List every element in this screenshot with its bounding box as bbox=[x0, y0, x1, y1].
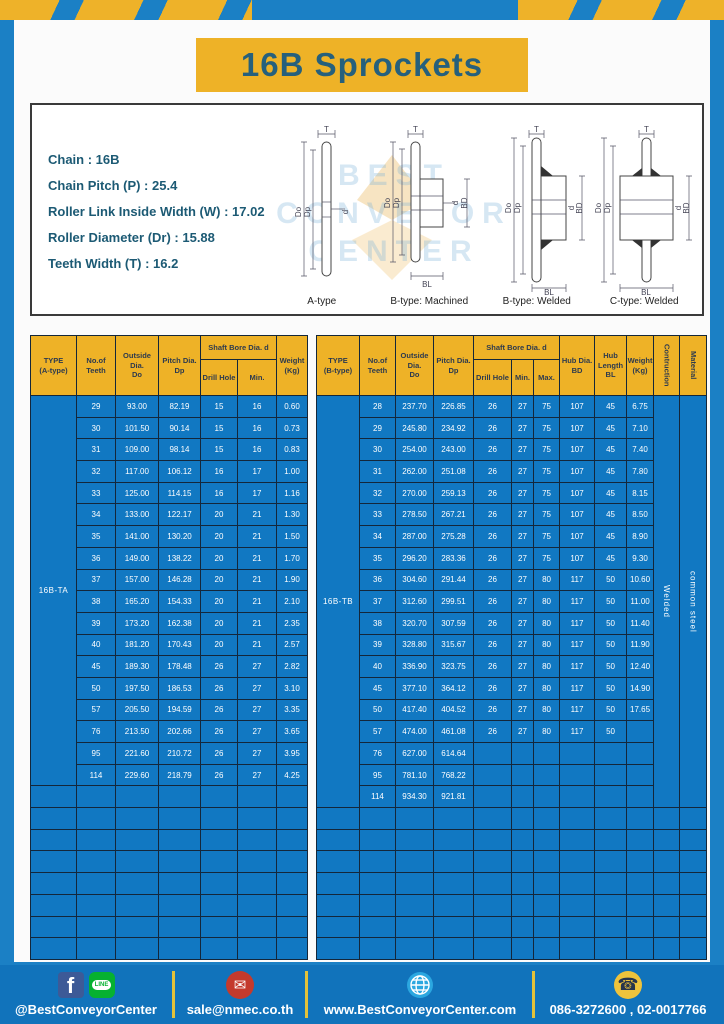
footer-email: ✉ sale@nmec.co.th bbox=[175, 965, 305, 1024]
cell: 90.14 bbox=[159, 417, 201, 439]
cell: 27 bbox=[512, 461, 534, 483]
empty-row bbox=[317, 829, 707, 851]
cell bbox=[654, 938, 680, 960]
cell: 36 bbox=[360, 569, 396, 591]
svg-text:T: T bbox=[534, 125, 539, 134]
cell bbox=[595, 851, 627, 873]
footer-contact-bar: f LINE @BestConveyorCenter ✉ sale@nmec.c… bbox=[0, 965, 724, 1024]
cell bbox=[317, 894, 360, 916]
svg-text:T: T bbox=[413, 125, 418, 134]
sprocket-section-icon: T Do Dp d bbox=[274, 124, 370, 296]
cell bbox=[474, 764, 512, 786]
empty-row bbox=[317, 808, 707, 830]
cell bbox=[680, 808, 707, 830]
svg-text:Dp: Dp bbox=[392, 197, 401, 208]
cell: 93.00 bbox=[116, 396, 159, 418]
cell: 1.90 bbox=[277, 569, 308, 591]
cell: 768.22 bbox=[434, 764, 474, 786]
table-row: 36304.60291.442627801175010.60 bbox=[317, 569, 707, 591]
type-label: 16B-TA bbox=[31, 396, 77, 786]
cell bbox=[560, 873, 595, 895]
svg-text:Do: Do bbox=[294, 206, 303, 217]
cell: 107 bbox=[560, 482, 595, 504]
cell bbox=[317, 808, 360, 830]
cell: 8.15 bbox=[627, 482, 654, 504]
cell bbox=[31, 916, 77, 938]
cell: 307.59 bbox=[434, 612, 474, 634]
cell bbox=[534, 743, 560, 765]
cell bbox=[201, 873, 238, 895]
cell: 259.13 bbox=[434, 482, 474, 504]
table-row: 33278.50267.21262775107458.50 bbox=[317, 504, 707, 526]
cell bbox=[238, 829, 277, 851]
drawing-caption: B-type: Welded bbox=[503, 296, 571, 307]
cell bbox=[560, 786, 595, 808]
cell: 234.92 bbox=[434, 417, 474, 439]
cell: 80 bbox=[534, 699, 560, 721]
drawing-caption: A-type bbox=[307, 296, 336, 307]
cell bbox=[159, 786, 201, 808]
cell: 21 bbox=[238, 526, 277, 548]
cell: 218.79 bbox=[159, 764, 201, 786]
cell bbox=[116, 851, 159, 873]
cell bbox=[277, 938, 308, 960]
cell: 26 bbox=[201, 656, 238, 678]
cell: 30 bbox=[77, 417, 116, 439]
cell: 154.33 bbox=[159, 591, 201, 613]
cell: 287.00 bbox=[396, 526, 434, 548]
svg-text:Do: Do bbox=[504, 202, 513, 213]
cell: 75 bbox=[534, 439, 560, 461]
email-address: sale@nmec.co.th bbox=[187, 1002, 294, 1017]
cell: 146.28 bbox=[159, 569, 201, 591]
empty-row bbox=[31, 851, 308, 873]
cell: 312.60 bbox=[396, 591, 434, 613]
cell bbox=[560, 851, 595, 873]
cell bbox=[116, 873, 159, 895]
cell bbox=[116, 894, 159, 916]
cell: 50 bbox=[595, 677, 627, 699]
cell: 107 bbox=[560, 439, 595, 461]
cell: 27 bbox=[238, 764, 277, 786]
svg-text:BD: BD bbox=[682, 202, 691, 213]
cell: 80 bbox=[534, 569, 560, 591]
cell bbox=[512, 873, 534, 895]
cell bbox=[534, 786, 560, 808]
cell: 26 bbox=[201, 764, 238, 786]
cell: 45 bbox=[595, 526, 627, 548]
cell bbox=[627, 916, 654, 938]
cell: 202.66 bbox=[159, 721, 201, 743]
cell bbox=[434, 873, 474, 895]
cell: 15 bbox=[201, 439, 238, 461]
cell bbox=[201, 808, 238, 830]
table-row: 16B-TB28237.70226.85262775107456.75Welde… bbox=[317, 396, 707, 418]
col-header-outside-dia: Outside Dia. Do bbox=[396, 336, 434, 396]
footer-social: f LINE @BestConveyorCenter bbox=[0, 965, 172, 1024]
cell: 614.64 bbox=[434, 743, 474, 765]
cell: 37 bbox=[77, 569, 116, 591]
cell: 1.30 bbox=[277, 504, 308, 526]
cell bbox=[560, 938, 595, 960]
cell: 27 bbox=[238, 721, 277, 743]
facebook-icon: f bbox=[58, 972, 84, 998]
cell: 404.52 bbox=[434, 699, 474, 721]
cell: 213.50 bbox=[116, 721, 159, 743]
cell: 33 bbox=[77, 482, 116, 504]
svg-text:T: T bbox=[324, 125, 329, 134]
footer-phone: ☎ 086-3272600 , 02-0017766 bbox=[535, 965, 721, 1024]
cell bbox=[31, 786, 77, 808]
cell: 45 bbox=[595, 417, 627, 439]
cell bbox=[238, 894, 277, 916]
cell bbox=[360, 894, 396, 916]
cell: 95 bbox=[360, 764, 396, 786]
cell: 16 bbox=[201, 482, 238, 504]
cell bbox=[680, 851, 707, 873]
cell: 45 bbox=[595, 439, 627, 461]
cell: 328.80 bbox=[396, 634, 434, 656]
cell: 278.50 bbox=[396, 504, 434, 526]
cell bbox=[654, 894, 680, 916]
cell: 117 bbox=[560, 569, 595, 591]
cell: 251.08 bbox=[434, 461, 474, 483]
cell: 0.60 bbox=[277, 396, 308, 418]
table-row: 114934.30921.81 bbox=[317, 786, 707, 808]
cell: 27 bbox=[512, 591, 534, 613]
table-row: 34287.00275.28262775107458.90 bbox=[317, 526, 707, 548]
cell bbox=[474, 743, 512, 765]
empty-row bbox=[31, 786, 308, 808]
cell: 189.30 bbox=[116, 656, 159, 678]
cell: 27 bbox=[512, 612, 534, 634]
cell: 377.10 bbox=[396, 677, 434, 699]
cell: 107 bbox=[560, 504, 595, 526]
cell: 27 bbox=[238, 743, 277, 765]
table-row: 31262.00251.08262775107457.80 bbox=[317, 461, 707, 483]
cell bbox=[238, 873, 277, 895]
cell bbox=[627, 851, 654, 873]
cell: 39 bbox=[77, 612, 116, 634]
col-header-material: Material bbox=[680, 336, 707, 396]
cell: 3.10 bbox=[277, 677, 308, 699]
cell bbox=[627, 743, 654, 765]
cell: 101.50 bbox=[116, 417, 159, 439]
cell: 12.40 bbox=[627, 656, 654, 678]
cell bbox=[434, 938, 474, 960]
cell: 40 bbox=[360, 656, 396, 678]
cell: 45 bbox=[360, 677, 396, 699]
sprocket-section-icon: T Do Dp d BD BL bbox=[377, 124, 481, 296]
cell: 14.90 bbox=[627, 677, 654, 699]
cell: 7.80 bbox=[627, 461, 654, 483]
cell: 1.70 bbox=[277, 547, 308, 569]
cell bbox=[434, 851, 474, 873]
cell: 320.70 bbox=[396, 612, 434, 634]
cell: 107 bbox=[560, 547, 595, 569]
cell: 27 bbox=[512, 547, 534, 569]
col-header-weight: Weight (Kg) bbox=[277, 336, 308, 396]
cell bbox=[627, 808, 654, 830]
cell bbox=[396, 938, 434, 960]
cell bbox=[116, 786, 159, 808]
cell: 117 bbox=[560, 591, 595, 613]
col-header-weight: Weight (Kg) bbox=[627, 336, 654, 396]
cell: 6.75 bbox=[627, 396, 654, 418]
table-row: 37312.60299.512627801175011.00 bbox=[317, 591, 707, 613]
cell bbox=[277, 851, 308, 873]
cell: 95 bbox=[77, 743, 116, 765]
cell bbox=[159, 916, 201, 938]
cell bbox=[595, 743, 627, 765]
cell bbox=[77, 894, 116, 916]
cell bbox=[159, 808, 201, 830]
cell: 26 bbox=[474, 677, 512, 699]
cell: 26 bbox=[474, 547, 512, 569]
cell: 0.83 bbox=[277, 439, 308, 461]
cell: 26 bbox=[201, 721, 238, 743]
cell: 21 bbox=[238, 569, 277, 591]
cell: 16 bbox=[238, 396, 277, 418]
cell bbox=[474, 938, 512, 960]
table-row: 40336.90323.752627801175012.40 bbox=[317, 656, 707, 678]
sprocket-table-a-type: TYPE (A-type) No.of Teeth Outside Dia. D… bbox=[30, 335, 308, 960]
cell bbox=[159, 894, 201, 916]
cell: 417.40 bbox=[396, 699, 434, 721]
cell: 29 bbox=[77, 396, 116, 418]
cell bbox=[534, 829, 560, 851]
cell: 26 bbox=[474, 504, 512, 526]
cell bbox=[396, 873, 434, 895]
cell bbox=[595, 894, 627, 916]
cell bbox=[512, 894, 534, 916]
cell: 270.00 bbox=[396, 482, 434, 504]
cell: 0.73 bbox=[277, 417, 308, 439]
cell: 8.50 bbox=[627, 504, 654, 526]
cell bbox=[627, 786, 654, 808]
cell: 80 bbox=[534, 677, 560, 699]
sprocket-section-icon: T Do Dp d BD BL bbox=[485, 124, 589, 296]
catalog-page: 16B Sprockets BEST CONVEYOR CENTER Chain… bbox=[0, 0, 724, 1024]
spec-line-pitch: Chain Pitch (P) : 25.4 bbox=[48, 173, 265, 199]
cell: 20 bbox=[201, 526, 238, 548]
col-header-hub-dia: Hub Dia. BD bbox=[560, 336, 595, 396]
svg-text:Dp: Dp bbox=[603, 202, 612, 213]
cell: 9.30 bbox=[627, 547, 654, 569]
cell: 27 bbox=[512, 699, 534, 721]
cell: 27 bbox=[512, 721, 534, 743]
svg-text:Do: Do bbox=[383, 197, 392, 208]
cell: 40 bbox=[77, 634, 116, 656]
cell bbox=[31, 894, 77, 916]
cell: 26 bbox=[474, 656, 512, 678]
cell bbox=[277, 916, 308, 938]
hazard-stripe-right bbox=[518, 0, 724, 20]
cell bbox=[512, 851, 534, 873]
cell: 3.65 bbox=[277, 721, 308, 743]
cell: 27 bbox=[238, 699, 277, 721]
cell: 283.36 bbox=[434, 547, 474, 569]
cell: 80 bbox=[534, 656, 560, 678]
cell: 16 bbox=[201, 461, 238, 483]
cell bbox=[474, 851, 512, 873]
cell: 237.70 bbox=[396, 396, 434, 418]
cell: 45 bbox=[595, 504, 627, 526]
cell bbox=[238, 786, 277, 808]
svg-text:BD: BD bbox=[460, 197, 469, 208]
cell: 26 bbox=[474, 526, 512, 548]
cell: 275.28 bbox=[434, 526, 474, 548]
cell bbox=[277, 829, 308, 851]
cell: 262.00 bbox=[396, 461, 434, 483]
cell: 299.51 bbox=[434, 591, 474, 613]
cell bbox=[360, 851, 396, 873]
cell bbox=[627, 764, 654, 786]
table-row: 57474.00461.0826278011750 bbox=[317, 721, 707, 743]
cell bbox=[434, 808, 474, 830]
cell: 141.00 bbox=[116, 526, 159, 548]
cell: 107 bbox=[560, 526, 595, 548]
cell: 291.44 bbox=[434, 569, 474, 591]
cell: 781.10 bbox=[396, 764, 434, 786]
cell: 11.90 bbox=[627, 634, 654, 656]
cell bbox=[396, 808, 434, 830]
cell: 26 bbox=[474, 569, 512, 591]
cell: 38 bbox=[77, 591, 116, 613]
cell bbox=[201, 894, 238, 916]
table-row: 16B-TA2993.0082.1915160.60 bbox=[31, 396, 308, 418]
cell: 15 bbox=[201, 396, 238, 418]
cell bbox=[31, 873, 77, 895]
cell bbox=[396, 829, 434, 851]
cell bbox=[238, 808, 277, 830]
cell: 2.35 bbox=[277, 612, 308, 634]
cell bbox=[317, 829, 360, 851]
cell: 16 bbox=[238, 439, 277, 461]
c-type-welded-drawing: T Do Dp d BD BL bbox=[591, 109, 699, 310]
cell: 2.10 bbox=[277, 591, 308, 613]
cell bbox=[31, 808, 77, 830]
cell: 21 bbox=[238, 504, 277, 526]
col-header-construction: Contruction bbox=[654, 336, 680, 396]
empty-row bbox=[31, 938, 308, 960]
cell bbox=[560, 808, 595, 830]
cell: 205.50 bbox=[116, 699, 159, 721]
cell: 26 bbox=[474, 721, 512, 743]
cell: 194.59 bbox=[159, 699, 201, 721]
cell: 243.00 bbox=[434, 439, 474, 461]
cell bbox=[627, 938, 654, 960]
cell: 27 bbox=[512, 634, 534, 656]
cell: 50 bbox=[595, 634, 627, 656]
footer-website: www.BestConveyorCenter.com bbox=[308, 965, 532, 1024]
col-header-type: TYPE (A-type) bbox=[31, 336, 77, 396]
cell: 133.00 bbox=[116, 504, 159, 526]
cell: 20 bbox=[201, 612, 238, 634]
cell bbox=[512, 743, 534, 765]
cell bbox=[31, 938, 77, 960]
cell: 364.12 bbox=[434, 677, 474, 699]
cell: 178.48 bbox=[159, 656, 201, 678]
cell: 27 bbox=[512, 656, 534, 678]
cell: 50 bbox=[595, 591, 627, 613]
cell: 117.00 bbox=[116, 461, 159, 483]
cell bbox=[396, 916, 434, 938]
cell bbox=[116, 916, 159, 938]
cell bbox=[159, 829, 201, 851]
cell: 2.82 bbox=[277, 656, 308, 678]
cell bbox=[434, 916, 474, 938]
cell bbox=[317, 873, 360, 895]
cell bbox=[360, 916, 396, 938]
line-icon: LINE bbox=[89, 972, 115, 998]
cell bbox=[116, 808, 159, 830]
cell: 117 bbox=[560, 699, 595, 721]
cell bbox=[512, 764, 534, 786]
cell bbox=[238, 916, 277, 938]
cell bbox=[474, 829, 512, 851]
cell: 7.10 bbox=[627, 417, 654, 439]
cell: 38 bbox=[360, 612, 396, 634]
sprocket-table-b-type: TYPE (B-type) No.of Teeth Outside Dia. D… bbox=[316, 335, 707, 960]
cell: 39 bbox=[360, 634, 396, 656]
cell bbox=[512, 786, 534, 808]
cell: 57 bbox=[77, 699, 116, 721]
cell: 28 bbox=[360, 396, 396, 418]
cell: 75 bbox=[534, 547, 560, 569]
cell bbox=[77, 786, 116, 808]
cell bbox=[512, 808, 534, 830]
cell: 35 bbox=[77, 526, 116, 548]
cell bbox=[77, 916, 116, 938]
cell bbox=[360, 873, 396, 895]
cell: 45 bbox=[595, 396, 627, 418]
cell: 32 bbox=[77, 461, 116, 483]
cell: 315.67 bbox=[434, 634, 474, 656]
col-header-drill-hole: Drill Hole bbox=[474, 360, 512, 396]
cell bbox=[277, 873, 308, 895]
cell bbox=[627, 721, 654, 743]
cell bbox=[31, 851, 77, 873]
cell bbox=[116, 938, 159, 960]
cell: 106.12 bbox=[159, 461, 201, 483]
col-header-outside-dia: Outside Dia. Do bbox=[116, 336, 159, 396]
cell bbox=[277, 894, 308, 916]
cell bbox=[77, 851, 116, 873]
cell bbox=[534, 938, 560, 960]
cell: 627.00 bbox=[396, 743, 434, 765]
cell bbox=[627, 894, 654, 916]
title-bar: 16B Sprockets bbox=[196, 38, 528, 92]
table-row: 45377.10364.122627801175014.90 bbox=[317, 677, 707, 699]
cell: 27 bbox=[512, 569, 534, 591]
cell: 45 bbox=[595, 461, 627, 483]
cell: 117 bbox=[560, 634, 595, 656]
cell: 50 bbox=[595, 569, 627, 591]
cell bbox=[317, 938, 360, 960]
cell bbox=[77, 873, 116, 895]
cell: 162.38 bbox=[159, 612, 201, 634]
cell bbox=[159, 851, 201, 873]
cell bbox=[595, 829, 627, 851]
cell bbox=[201, 829, 238, 851]
cell: 11.00 bbox=[627, 591, 654, 613]
cell: 323.75 bbox=[434, 656, 474, 678]
cell: 296.20 bbox=[396, 547, 434, 569]
cell bbox=[534, 916, 560, 938]
cell bbox=[277, 808, 308, 830]
cell bbox=[159, 873, 201, 895]
